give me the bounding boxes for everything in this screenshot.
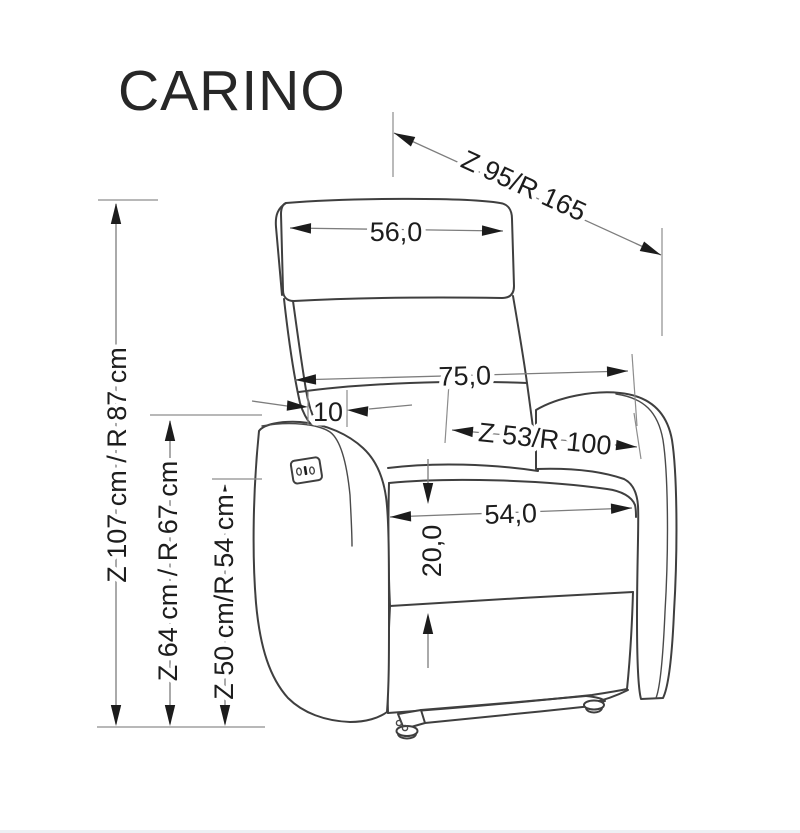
seat-front-crease [390,592,633,606]
recliner-illustration [254,199,677,739]
dimension-drawing-page: CARINO Z 95/R 165 56,0 75,0 10 Z 53/R 10… [0,0,800,833]
label-seat-height: Z 50 cm/R 54 cm [209,494,239,700]
base-sled [396,690,628,739]
backrest-crease [299,382,527,392]
label-armrest-height: Z 64 cm / R 67 cm [153,461,183,682]
label-backrest-width: 75,0 [438,360,491,391]
label-total-height: Z 107 cm / R 87 cm [102,347,132,583]
label-seat-width: 54,0 [484,498,538,530]
front-panel-right-edge [627,592,633,689]
label-seat-cushion-front-height: 20,0 [417,525,447,578]
product-title: CARINO [118,59,346,123]
label-backrest-armrest-gap: 10 [313,397,343,427]
backrest-left-inner-edge [293,301,315,421]
technical-drawing: CARINO Z 95/R 165 56,0 75,0 10 Z 53/R 10… [0,0,800,833]
headrest-outline [281,199,514,301]
label-headrest-width: 56,0 [370,217,423,247]
seatback-top-edge [388,464,538,471]
recline-control-panel[interactable] [290,457,322,484]
